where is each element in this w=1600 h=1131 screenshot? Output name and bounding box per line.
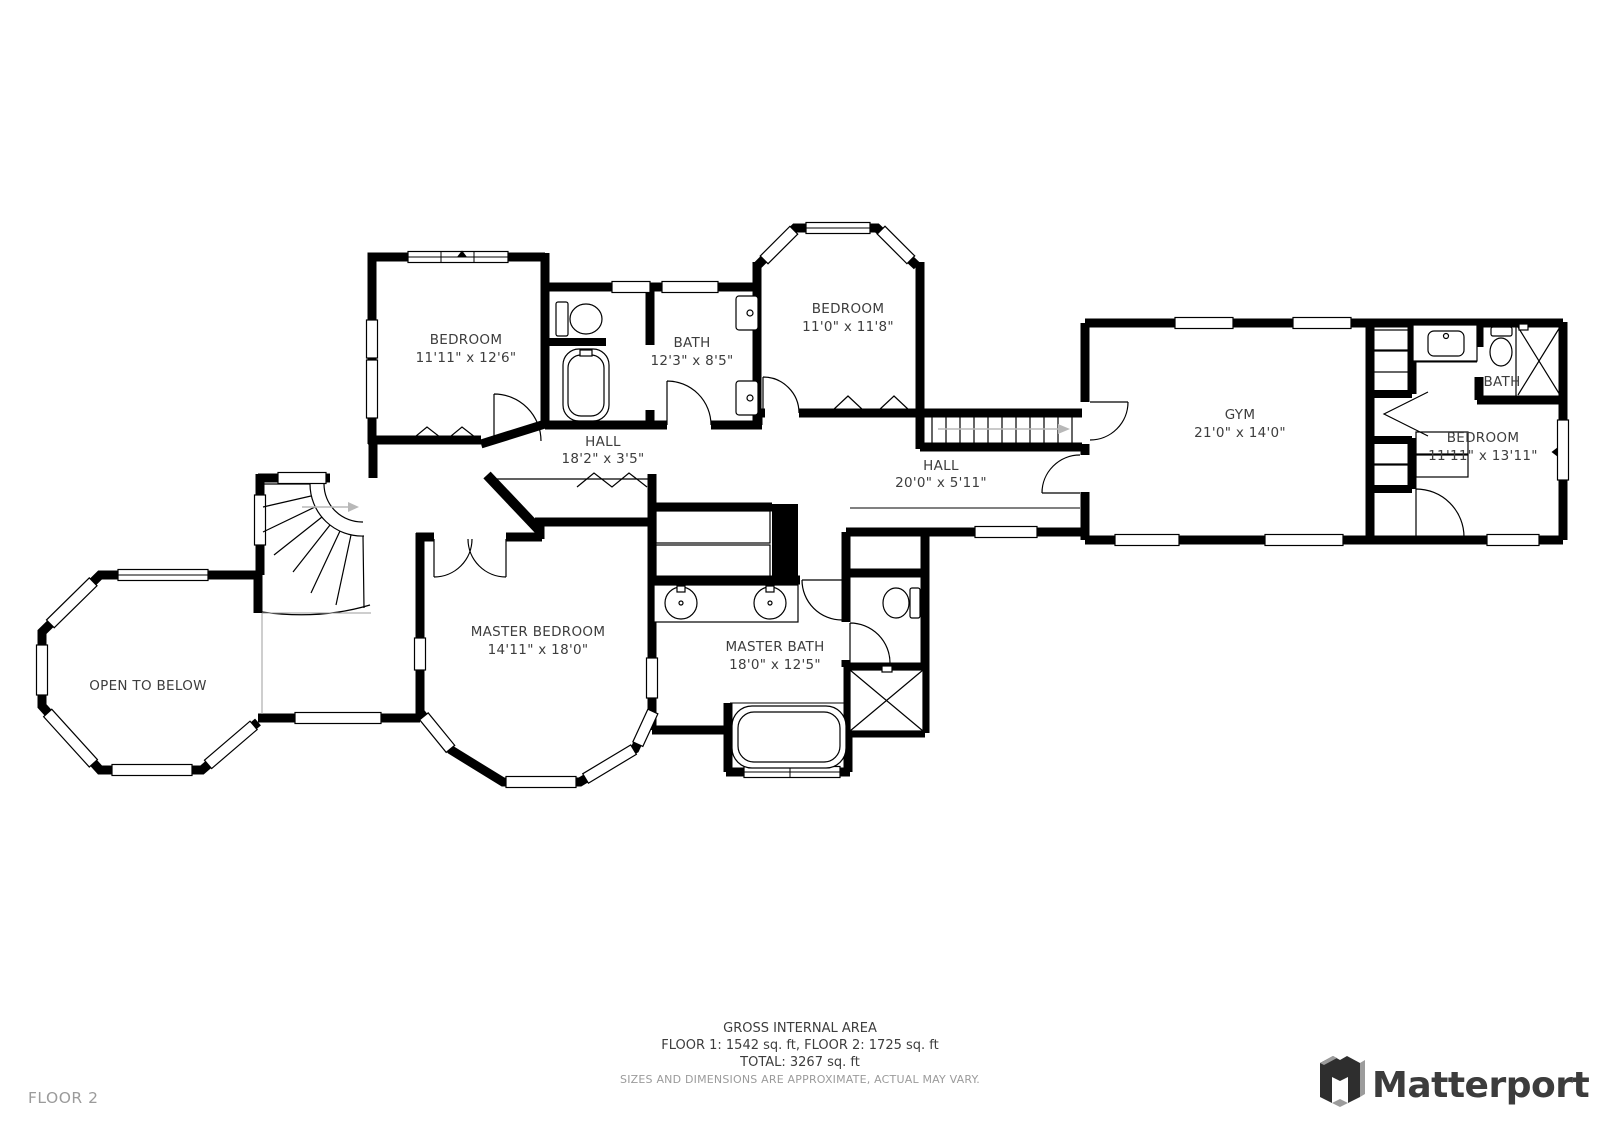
room-label-master-bedroom: MASTER BEDROOM 14'11" x 18'0" xyxy=(471,624,606,658)
room-name: GYM xyxy=(1225,407,1256,423)
room-label-hall-2: HALL 20'0" x 5'11" xyxy=(895,458,987,491)
toilet-icon xyxy=(556,302,568,336)
stair-direction-arrow xyxy=(938,424,1070,434)
wall-block xyxy=(772,504,798,580)
floor-number-label: FLOOR 2 xyxy=(28,1089,98,1107)
room-label-bath-2: BATH xyxy=(1483,374,1520,390)
room-label-master-bath: MASTER BATH 18'0" x 12'5" xyxy=(725,639,824,673)
matterport-wordmark: Matterport xyxy=(1372,1065,1589,1106)
toilet-bowl-icon xyxy=(883,588,909,618)
room-name: BEDROOM xyxy=(1447,430,1520,446)
curved-stair-arrow xyxy=(302,502,359,512)
room-dims: 14'11" x 18'0" xyxy=(488,642,589,658)
curved-staircase xyxy=(262,484,370,615)
toilet-icon xyxy=(910,588,920,618)
total-area-line: TOTAL: 3267 sq. ft xyxy=(739,1055,860,1070)
room-label-bedroom-1: BEDROOM 11'11" x 12'6" xyxy=(416,332,517,366)
room-name: HALL xyxy=(923,458,959,474)
room-dims: 20'0" x 5'11" xyxy=(895,475,987,491)
footer: GROSS INTERNAL AREA FLOOR 1: 1542 sq. ft… xyxy=(620,1021,980,1086)
room-dims: 11'11" x 12'6" xyxy=(416,350,517,366)
floors-area-line: FLOOR 1: 1542 sq. ft, FLOOR 2: 1725 sq. … xyxy=(661,1038,939,1053)
room-name: MASTER BATH xyxy=(725,639,824,655)
room-dims: 18'2" x 3'5" xyxy=(562,451,645,467)
matterport-logo-icon xyxy=(1320,1056,1365,1107)
room-name: BEDROOM xyxy=(812,301,885,317)
toilet-icon xyxy=(1491,327,1512,336)
floor-plan-svg: BEDROOM 11'11" x 12'6" BATH 12'3" x 8'5"… xyxy=(0,0,1600,1131)
room-name: OPEN TO BELOW xyxy=(89,678,207,694)
room-label-open-to-below: OPEN TO BELOW xyxy=(89,678,207,694)
shower-icon xyxy=(1518,327,1560,395)
room-label-hall-1: HALL 18'2" x 3'5" xyxy=(562,434,645,467)
room-label-bedroom-3: BEDROOM 11'11" x 13'11" xyxy=(1428,430,1538,464)
toilet-bowl-icon xyxy=(570,304,602,334)
room-dims: 12'3" x 8'5" xyxy=(651,353,734,369)
toilet-bowl-icon xyxy=(1490,338,1512,366)
gross-area-title: GROSS INTERNAL AREA xyxy=(723,1021,877,1036)
room-name: BATH xyxy=(1483,374,1520,390)
floor-plan-page: BEDROOM 11'11" x 12'6" BATH 12'3" x 8'5"… xyxy=(0,0,1600,1131)
room-label-bath-1: BATH 12'3" x 8'5" xyxy=(651,335,734,369)
room-dims: 21'0" x 14'0" xyxy=(1194,425,1286,441)
disclaimer-line: SIZES AND DIMENSIONS ARE APPROXIMATE, AC… xyxy=(620,1073,980,1086)
room-name: BATH xyxy=(673,335,710,351)
room-dims: 11'0" x 11'8" xyxy=(802,319,894,335)
room-label-bedroom-2: BEDROOM 11'0" x 11'8" xyxy=(802,301,894,335)
matterport-logo: Matterport xyxy=(1320,1056,1589,1107)
room-name: MASTER BEDROOM xyxy=(471,624,606,640)
room-dims: 18'0" x 12'5" xyxy=(729,657,821,673)
room-name: HALL xyxy=(585,434,621,450)
room-name: BEDROOM xyxy=(430,332,503,348)
room-label-gym: GYM 21'0" x 14'0" xyxy=(1194,407,1286,441)
room-dims: 11'11" x 13'11" xyxy=(1428,448,1538,464)
void-railing xyxy=(262,613,371,714)
